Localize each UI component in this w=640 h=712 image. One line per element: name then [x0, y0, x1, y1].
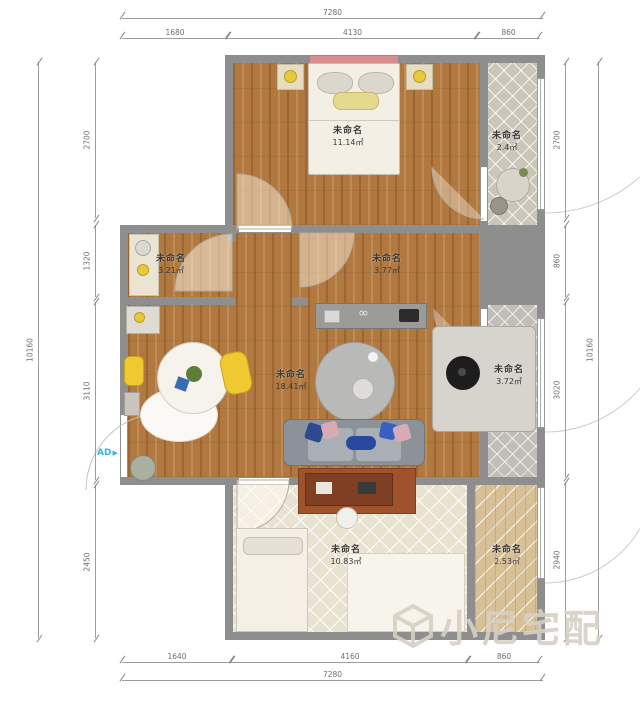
- dim-left-seg-1: 2700: [95, 62, 96, 218]
- wall-shaft: [480, 225, 537, 305]
- bed-headboard-strip: [310, 56, 398, 63]
- room-label-living-room[interactable]: 未命名 18.41㎡: [253, 367, 329, 392]
- dim-bottom-seg-1: 1640: [122, 662, 232, 663]
- balcony-plant: [519, 168, 528, 177]
- dim-top-seg-1: 1680: [122, 38, 228, 39]
- sofa-pillow-pink-right: [392, 423, 412, 443]
- room-area: 18.41㎡: [253, 381, 329, 392]
- room-name: 未命名: [472, 128, 542, 141]
- game-console: [399, 309, 419, 322]
- dim-value: 10160: [26, 338, 35, 362]
- dim-value: 10160: [586, 338, 595, 362]
- door-gap-bedroom: [239, 226, 291, 232]
- coffee-table[interactable]: [352, 378, 374, 400]
- room-area: 2.53㎡: [472, 556, 542, 567]
- dim-right-seg-3: 3020: [565, 302, 566, 477]
- dim-value: 2940: [553, 550, 562, 569]
- cabinet-small-left[interactable]: [124, 392, 140, 416]
- sofa-cushion-center: [346, 436, 376, 450]
- dim-value: 1680: [165, 28, 184, 37]
- dim-left-seg-2: 1320: [95, 225, 96, 297]
- room-name: 未命名: [253, 367, 329, 380]
- room-area: 3.72㎡: [474, 376, 544, 387]
- room-name: 未命名: [474, 362, 544, 375]
- plant-living-corner[interactable]: [130, 455, 156, 481]
- glasses-icon: ∞: [358, 306, 369, 321]
- room-label-bedroom-bottom[interactable]: 未命名 10.83㎡: [308, 542, 384, 567]
- room-area: 11.14㎡: [310, 137, 386, 148]
- room-area: 10.83㎡: [308, 556, 384, 567]
- room-label-bedroom-top[interactable]: 未命名 11.14㎡: [310, 123, 386, 148]
- dim-right-seg-4: 2940: [565, 482, 566, 638]
- dim-value: 1640: [167, 652, 186, 661]
- ad-arrow-icon: ▶: [112, 450, 117, 457]
- bed-throw: [333, 92, 379, 110]
- room-name: 未命名: [308, 542, 384, 555]
- console-item: [324, 310, 340, 323]
- dim-top-seg-2: 4130: [228, 38, 477, 39]
- rug-deco-dot: [368, 352, 378, 362]
- wall-kitchen-stub: [228, 225, 236, 241]
- wall-bottom-left: [225, 477, 233, 640]
- room-area: 3.77㎡: [352, 265, 422, 276]
- wall-hallway-stub: [292, 297, 308, 305]
- wall-bottom: [225, 632, 545, 640]
- room-area: 2.4㎡: [472, 142, 542, 153]
- bed-bottom-pillow: [243, 537, 303, 555]
- dim-value: 4130: [343, 28, 362, 37]
- room-name: 未命名: [352, 251, 422, 264]
- dim-left-seg-4: 2450: [95, 485, 96, 638]
- dim-value: 2450: [83, 552, 92, 571]
- room-label-kitchen[interactable]: 未命名 3.21㎡: [136, 251, 206, 276]
- dim-value: 2700: [83, 130, 92, 149]
- door-gap-balcony-top: [481, 167, 487, 221]
- dim-value: 4160: [340, 652, 359, 661]
- desk-chair[interactable]: [336, 507, 358, 529]
- room-label-balcony-bottom[interactable]: 未命名 2.53㎡: [472, 542, 542, 567]
- sofa[interactable]: [283, 419, 425, 466]
- pillow-left: [317, 72, 353, 94]
- dim-right-overall: 10160: [598, 62, 599, 638]
- dim-left-seg-3: 3110: [95, 302, 96, 480]
- dim-value: 7280: [323, 8, 342, 17]
- desk-item-white: [316, 482, 332, 494]
- room-area: 3.21㎡: [136, 265, 206, 276]
- room-label-balcony-top[interactable]: 未命名 2.4㎡: [472, 128, 542, 153]
- bed-bottom-left[interactable]: [236, 528, 308, 632]
- dim-right-seg-1: 2700: [565, 62, 566, 218]
- dim-value: 860: [497, 652, 511, 661]
- dim-value: 860: [553, 254, 562, 268]
- room-label-bathroom[interactable]: 未命名 3.72㎡: [474, 362, 544, 387]
- tv-console[interactable]: ∞: [315, 303, 427, 329]
- desk-item-dark: [358, 482, 376, 494]
- wall-bedroom-left: [225, 55, 233, 233]
- door-gap-bottom-room: [239, 478, 289, 484]
- room-label-hallway[interactable]: 未命名 3.77㎡: [352, 251, 422, 276]
- dim-value: 860: [501, 28, 515, 37]
- window-arc-right-mid: [545, 307, 640, 432]
- room-name: 未命名: [310, 123, 386, 136]
- pillow-right: [358, 72, 394, 94]
- floor-plan-canvas: ∞ 未命名 11.14㎡ 未命名 2.4㎡ 未命名 3.21㎡: [0, 0, 640, 712]
- desk[interactable]: [305, 473, 393, 506]
- dim-top-overall: 7280: [122, 18, 543, 19]
- wall-kitchen-bottom: [120, 297, 235, 305]
- sideboard-lamp: [134, 312, 145, 323]
- bed-blanket-line: [309, 120, 399, 121]
- dim-left-overall: 10160: [38, 62, 39, 638]
- ad-label: AD: [97, 448, 111, 458]
- dim-value: 3110: [83, 381, 92, 400]
- ad-marker: AD ▶: [97, 448, 118, 458]
- double-bed[interactable]: [308, 63, 400, 175]
- lamp-left: [284, 70, 297, 83]
- dim-top-seg-3: 860: [477, 38, 540, 39]
- dim-value: 3020: [553, 380, 562, 399]
- dim-bottom-seg-2: 4160: [232, 662, 468, 663]
- balcony-chair[interactable]: [490, 197, 508, 215]
- lamp-right: [413, 70, 426, 83]
- bath-sink-dot: [458, 368, 466, 376]
- chair-yellow-wall[interactable]: [124, 356, 144, 386]
- dim-value: 1320: [83, 251, 92, 270]
- door-gap-entry: [121, 415, 127, 477]
- dim-value: 2700: [553, 130, 562, 149]
- room-name: 未命名: [136, 251, 206, 264]
- dim-value: 7280: [323, 670, 342, 679]
- room-name: 未命名: [472, 542, 542, 555]
- dim-bottom-overall: 7280: [122, 680, 543, 681]
- dim-bottom-seg-3: 860: [468, 662, 540, 663]
- dim-right-seg-2: 860: [565, 225, 566, 297]
